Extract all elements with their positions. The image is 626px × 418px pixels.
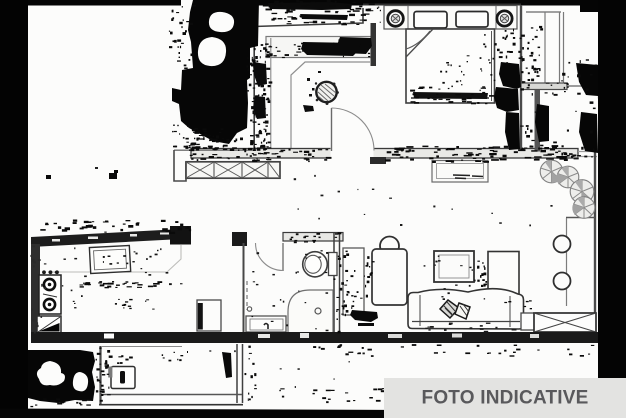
svg-text:FOTO INDICATIVE: FOTO INDICATIVE (422, 388, 589, 409)
